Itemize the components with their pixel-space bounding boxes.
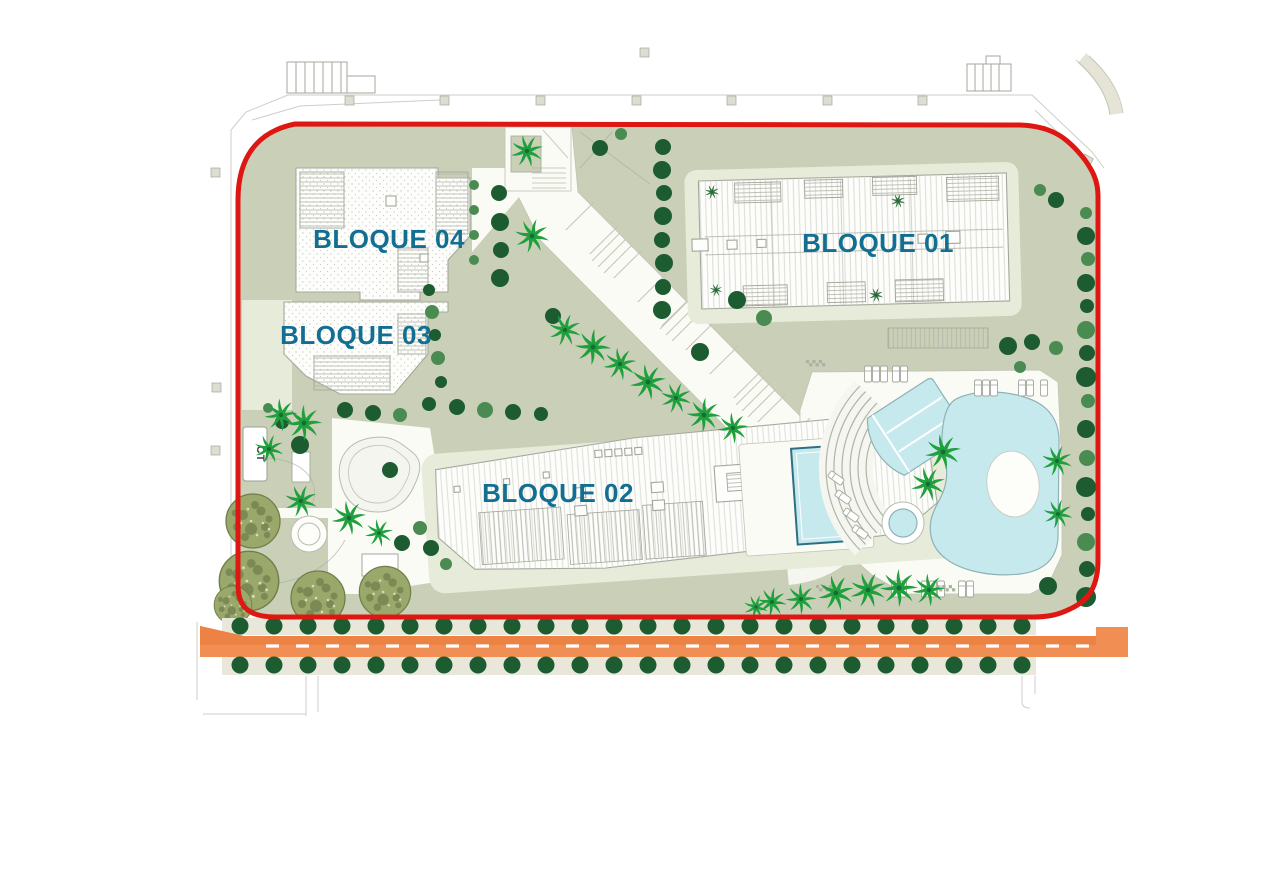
label-bloque-02: BLOQUE 02 [482, 478, 634, 508]
site-plan-svg: CT [0, 0, 1280, 873]
spa-pool [882, 502, 924, 544]
site-plan-canvas: CT [0, 0, 1280, 873]
main-pool [930, 392, 1059, 575]
fountain [291, 516, 327, 552]
label-bloque-01: BLOQUE 01 [802, 228, 954, 258]
ct-box: CT [243, 427, 267, 481]
label-bloque-03: BLOQUE 03 [280, 320, 432, 350]
planter [292, 452, 310, 482]
label-bloque-04: BLOQUE 04 [313, 224, 465, 254]
context-stair-structure-left [287, 62, 375, 93]
road-area [200, 618, 1128, 676]
context-stair-structure-right [967, 56, 1011, 91]
